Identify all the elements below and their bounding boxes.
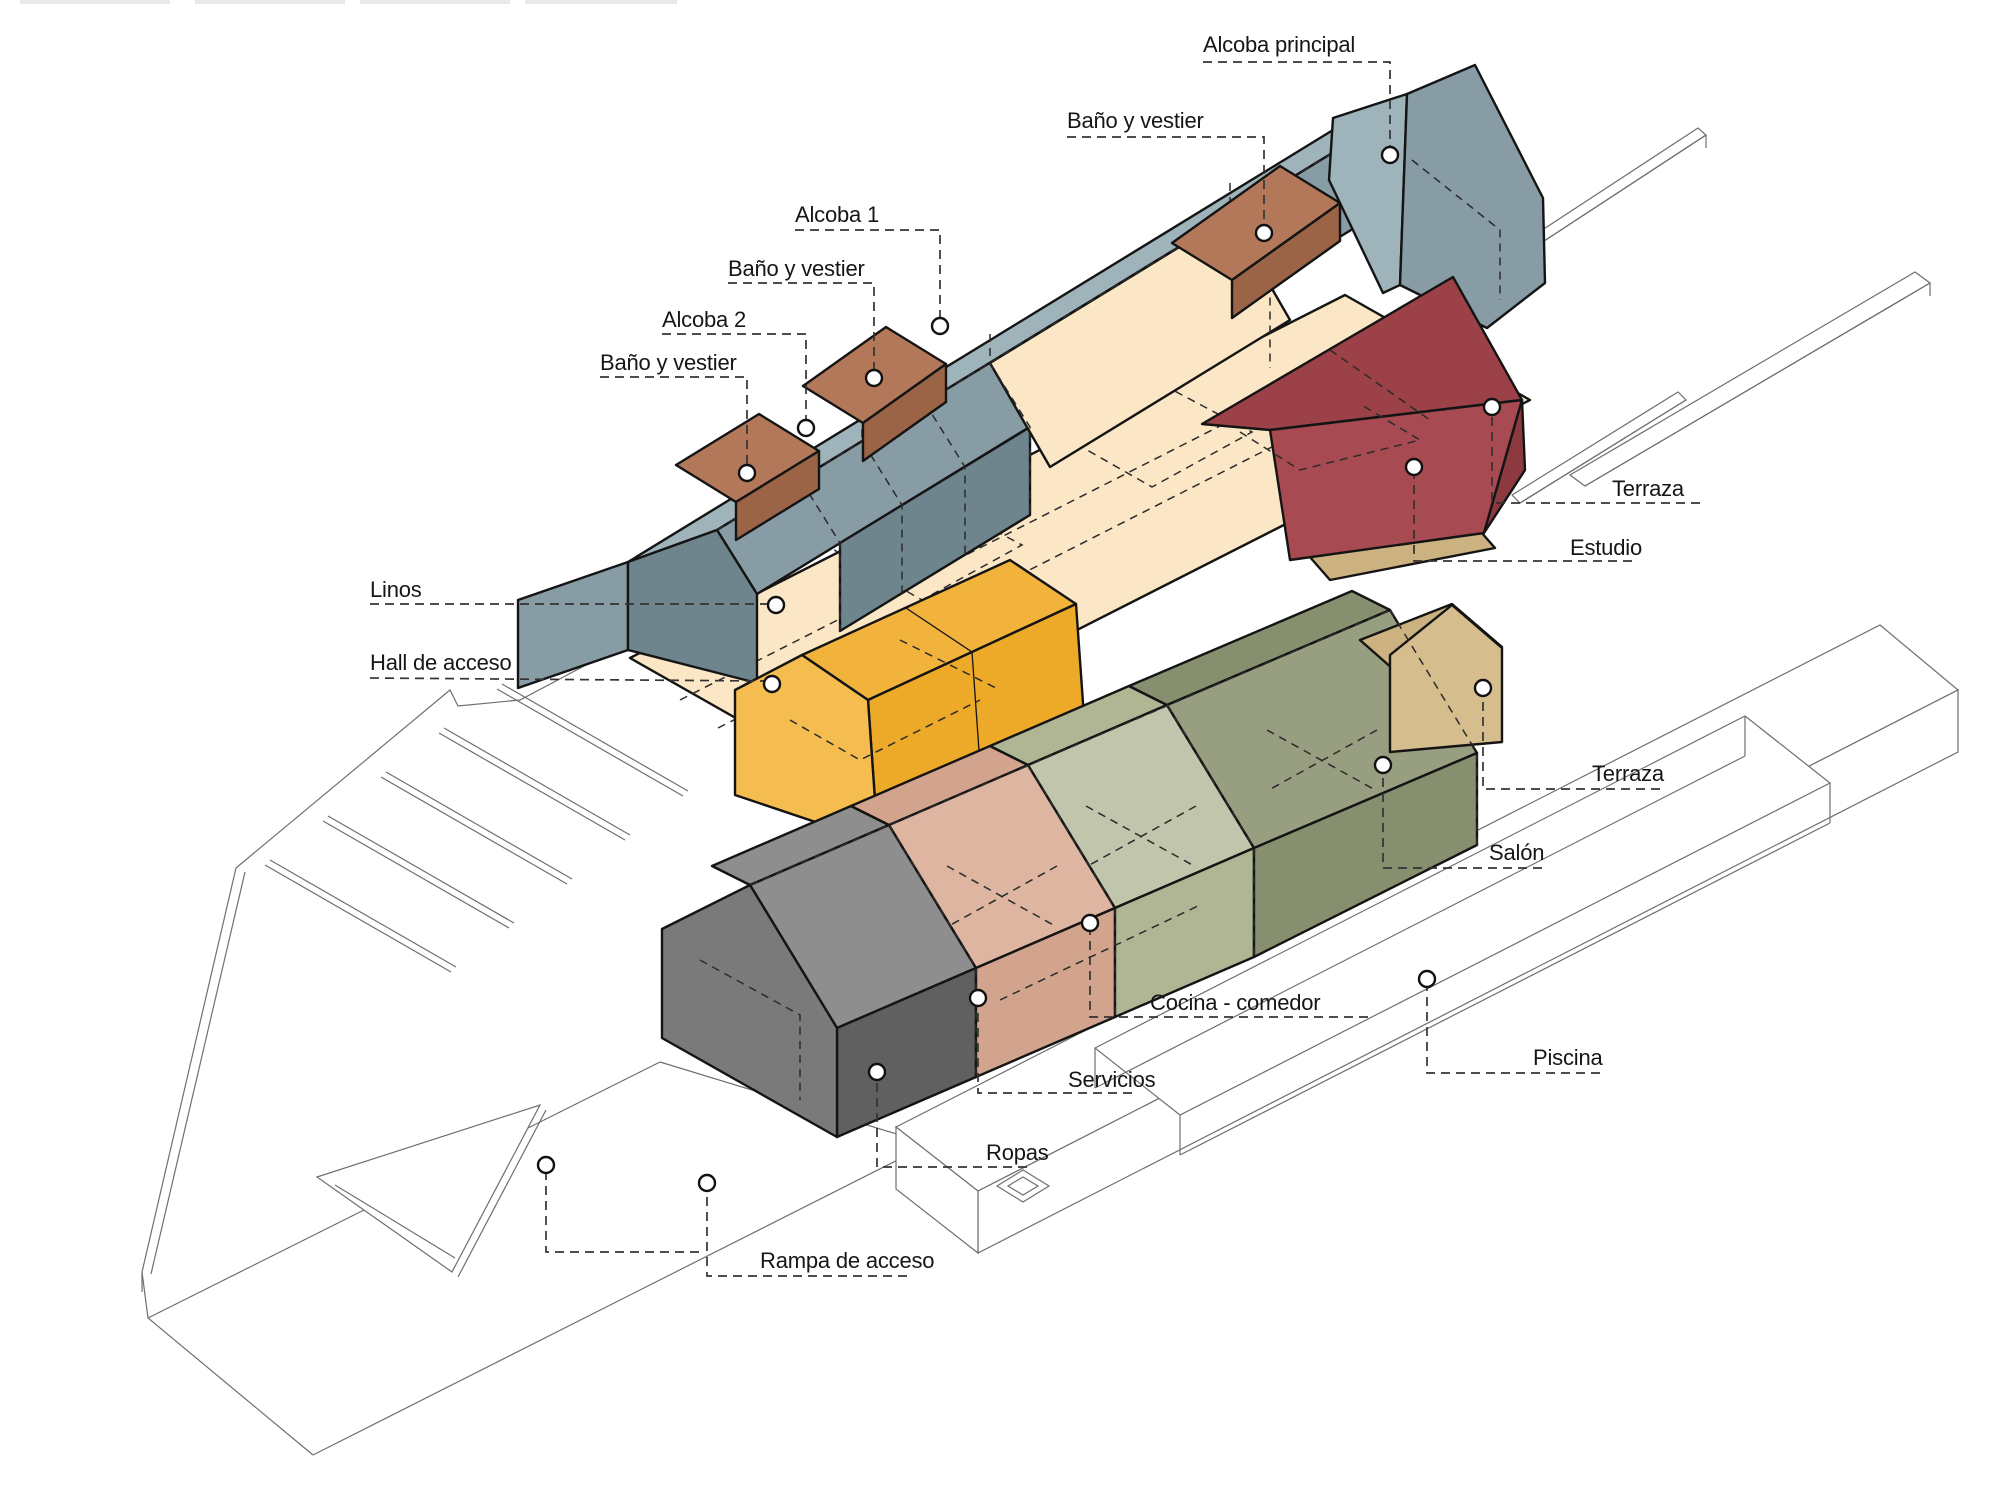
band-left-step <box>518 562 628 688</box>
deck-beams <box>265 684 688 972</box>
label-bano-vestier-2: Baño y vestier <box>728 256 865 281</box>
marker-estudio <box>1406 459 1422 475</box>
annotation-rampa-de-acceso: Rampa de acceso <box>538 1157 934 1276</box>
label-estudio: Estudio <box>1570 535 1642 560</box>
label-salon: Salón <box>1489 840 1544 865</box>
marker-salon <box>1375 757 1391 773</box>
pergola-beams <box>1512 128 1930 503</box>
access-ramp <box>317 1105 546 1277</box>
leader-rampa-secondary <box>546 1171 700 1252</box>
label-alcoba-2: Alcoba 2 <box>662 307 746 332</box>
label-bano-vestier-1: Baño y vestier <box>1067 108 1204 133</box>
principal-gable <box>1400 65 1545 328</box>
top-edge-artifacts <box>20 0 677 4</box>
marker-rampa-secondary <box>538 1157 554 1173</box>
axonometric-diagram: Alcoba principal Baño y vestier Alcoba 1… <box>0 0 2000 1511</box>
annotation-terraza-inferior: Terraza <box>1475 680 1665 789</box>
label-alcoba-principal: Alcoba principal <box>1203 32 1355 57</box>
marker-bano-vestier-1 <box>1256 225 1272 241</box>
marker-terraza-inferior <box>1475 680 1491 696</box>
marker-hall-de-acceso <box>764 676 780 692</box>
label-terraza-inferior: Terraza <box>1592 761 1665 786</box>
principal-roof <box>1329 94 1407 293</box>
marker-piscina <box>1419 971 1435 987</box>
terrain-left-edge <box>142 868 236 1272</box>
terrain-left-edge-2 <box>151 872 245 1274</box>
label-linos: Linos <box>370 577 422 602</box>
marker-linos <box>768 597 784 613</box>
marker-cocina-comedor <box>1082 915 1098 931</box>
marker-terraza-superior <box>1484 399 1500 415</box>
marker-servicios <box>970 990 986 1006</box>
marker-bano-vestier-3 <box>739 465 755 481</box>
plinth-corner <box>142 1272 313 1455</box>
marker-bano-vestier-2 <box>866 370 882 386</box>
deck-edge <box>236 648 618 868</box>
marker-ropas <box>869 1064 885 1080</box>
marker-rampa-de-acceso <box>699 1175 715 1191</box>
diagram-canvas: Alcoba principal Baño y vestier Alcoba 1… <box>0 0 2000 1511</box>
marker-alcoba-2 <box>798 420 814 436</box>
label-servicios: Servicios <box>1068 1067 1156 1092</box>
label-bano-vestier-3: Baño y vestier <box>600 350 737 375</box>
label-ropas: Ropas <box>986 1140 1049 1165</box>
label-hall-de-acceso: Hall de acceso <box>370 650 512 675</box>
label-rampa-de-acceso: Rampa de acceso <box>760 1248 934 1273</box>
label-piscina: Piscina <box>1533 1045 1603 1070</box>
label-cocina-comedor: Cocina - comedor <box>1150 990 1320 1015</box>
label-alcoba-1: Alcoba 1 <box>795 202 879 227</box>
label-terraza-superior: Terraza <box>1612 476 1685 501</box>
marker-alcoba-principal <box>1382 147 1398 163</box>
marker-alcoba-1 <box>932 318 948 334</box>
